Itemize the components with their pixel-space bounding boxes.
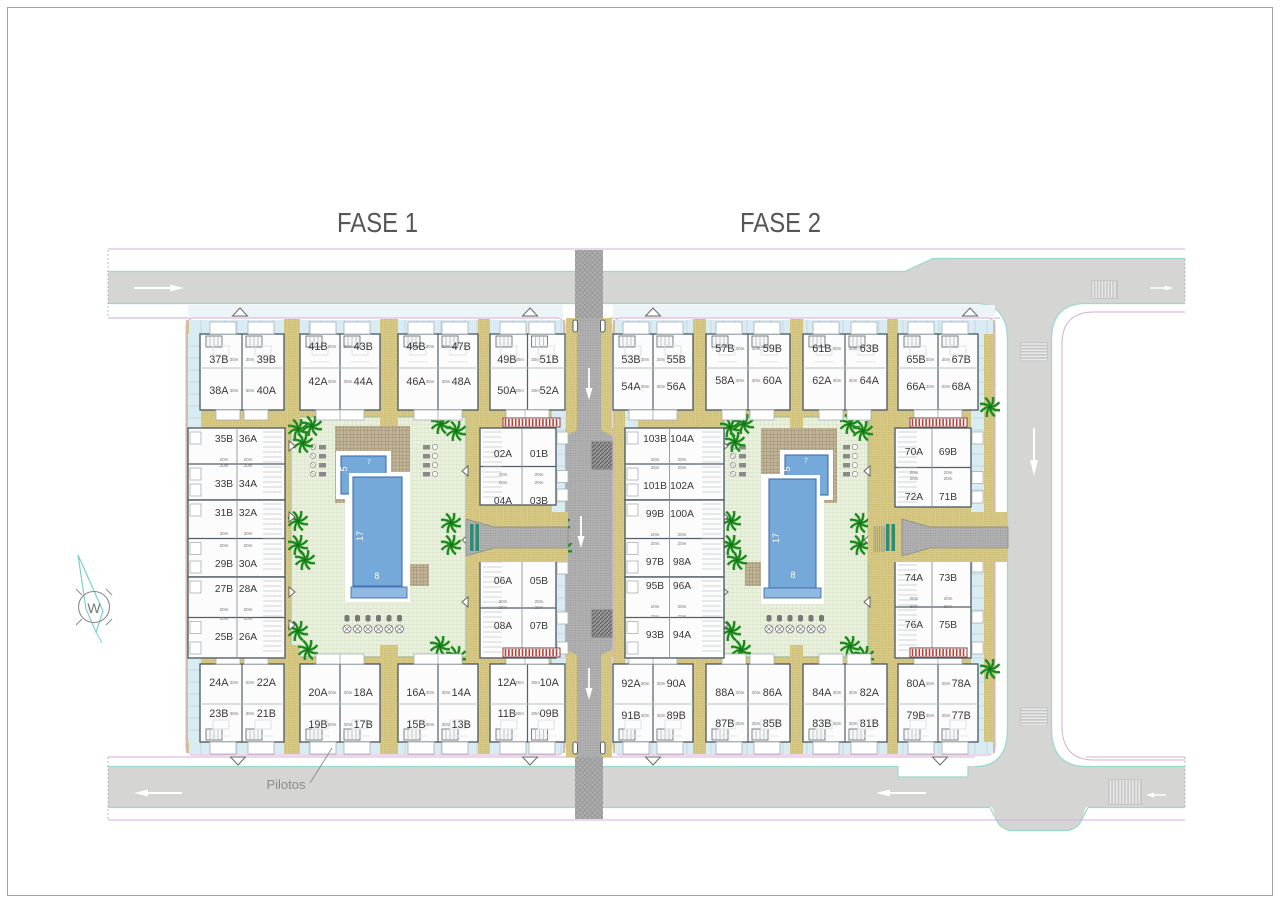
svg-text:30m: 30m [926,681,935,686]
svg-text:20m: 20m [499,599,508,604]
svg-text:30m: 30m [942,681,951,686]
svg-text:30m: 30m [942,384,951,389]
svg-text:30m: 30m [230,680,239,685]
svg-text:20m: 20m [220,616,229,621]
svg-text:30m: 30m [442,690,451,695]
svg-text:25B: 25B [215,632,233,643]
svg-text:30m: 30m [531,388,540,393]
svg-text:30m: 30m [641,357,650,362]
svg-text:11B: 11B [498,708,516,720]
svg-text:19B: 19B [308,719,327,731]
svg-text:FASE 1: FASE 1 [337,207,418,238]
svg-text:30m: 30m [328,379,337,384]
svg-text:20m: 20m [651,465,660,470]
svg-text:32A: 32A [239,508,257,519]
svg-text:22A: 22A [257,677,277,689]
svg-text:28A: 28A [239,584,257,595]
svg-text:30m: 30m [515,680,524,685]
svg-text:87B: 87B [715,718,734,730]
svg-text:64A: 64A [860,375,880,387]
svg-text:30m: 30m [641,384,650,389]
svg-text:20m: 20m [220,531,229,536]
svg-text:31B: 31B [215,508,233,519]
svg-text:30m: 30m [230,357,239,362]
svg-text:18A: 18A [354,687,374,699]
svg-text:30m: 30m [926,384,935,389]
svg-text:20m: 20m [910,470,919,475]
svg-text:20m: 20m [535,480,544,485]
svg-text:13B: 13B [452,719,471,731]
svg-text:30m: 30m [531,711,540,716]
svg-text:70A: 70A [905,447,923,458]
svg-text:44A: 44A [354,376,374,388]
svg-text:23B: 23B [209,708,228,720]
svg-text:30m: 30m [657,681,666,686]
svg-text:20m: 20m [535,599,544,604]
svg-text:102A: 102A [670,481,694,492]
svg-text:20m: 20m [244,616,253,621]
svg-text:83B: 83B [812,718,831,730]
svg-text:20m: 20m [651,541,660,546]
svg-text:30m: 30m [328,344,337,349]
svg-text:49B: 49B [497,354,516,366]
svg-text:37B: 37B [209,354,228,366]
svg-text:20m: 20m [244,463,253,468]
svg-text:30m: 30m [515,388,524,393]
svg-text:30m: 30m [426,722,435,727]
svg-text:62A: 62A [812,375,832,387]
svg-text:20m: 20m [651,614,660,619]
svg-text:20m: 20m [910,604,919,609]
svg-text:30m: 30m [641,681,650,686]
svg-text:30m: 30m [926,357,935,362]
svg-text:46A: 46A [406,376,426,388]
svg-text:20m: 20m [220,457,229,462]
svg-text:40A: 40A [257,385,277,397]
svg-text:20m: 20m [944,476,953,481]
svg-text:30m: 30m [736,378,745,383]
svg-text:57B: 57B [715,343,734,355]
svg-text:20m: 20m [678,465,687,470]
svg-text:39B: 39B [257,354,276,366]
svg-text:16A: 16A [406,687,426,699]
svg-text:47B: 47B [452,341,471,353]
svg-text:63B: 63B [860,343,879,355]
svg-text:30m: 30m [344,379,353,384]
svg-text:30m: 30m [442,722,451,727]
svg-text:30m: 30m [531,357,540,362]
svg-text:30m: 30m [246,711,255,716]
svg-text:17: 17 [771,533,781,543]
svg-text:33B: 33B [215,479,233,490]
svg-text:01B: 01B [530,449,548,460]
svg-text:73B: 73B [939,573,957,584]
svg-text:81B: 81B [860,718,879,730]
svg-text:20m: 20m [220,463,229,468]
svg-text:06A: 06A [494,576,512,587]
svg-text:09B: 09B [540,708,559,720]
svg-text:94A: 94A [673,630,691,641]
svg-text:30m: 30m [344,344,353,349]
svg-text:30m: 30m [426,690,435,695]
svg-text:29B: 29B [215,559,233,570]
svg-text:79B: 79B [906,710,925,722]
svg-text:53B: 53B [621,354,640,366]
svg-text:35B: 35B [215,434,233,445]
svg-text:100A: 100A [670,509,694,520]
svg-text:90A: 90A [667,678,687,690]
svg-text:55B: 55B [667,354,686,366]
svg-text:20m: 20m [678,457,687,462]
svg-text:7: 7 [804,458,808,465]
svg-text:20m: 20m [678,532,687,537]
svg-text:27B: 27B [215,584,233,595]
svg-text:30m: 30m [752,690,761,695]
svg-text:20m: 20m [499,480,508,485]
svg-text:20m: 20m [944,604,953,609]
svg-text:30m: 30m [344,690,353,695]
svg-text:97B: 97B [646,557,664,568]
svg-text:30m: 30m [657,713,666,718]
svg-text:30m: 30m [942,713,951,718]
svg-text:30m: 30m [942,357,951,362]
svg-text:30m: 30m [736,721,745,726]
svg-text:30A: 30A [239,559,257,570]
svg-text:30m: 30m [833,721,842,726]
svg-text:30m: 30m [515,711,524,716]
svg-text:30m: 30m [849,378,858,383]
svg-text:30m: 30m [849,721,858,726]
svg-text:30m: 30m [833,346,842,351]
svg-text:05B: 05B [530,576,548,587]
svg-text:71B: 71B [939,492,957,503]
svg-text:30m: 30m [926,713,935,718]
svg-text:30m: 30m [230,388,239,393]
svg-text:20m: 20m [499,472,508,477]
svg-text:14A: 14A [452,687,472,699]
svg-text:67B: 67B [952,354,971,366]
svg-text:5: 5 [782,466,792,471]
svg-text:41B: 41B [308,341,327,353]
svg-text:38A: 38A [209,385,229,397]
svg-text:91B: 91B [621,710,640,722]
svg-text:103B: 103B [643,434,667,445]
svg-text:20m: 20m [944,596,953,601]
svg-text:17B: 17B [354,719,373,731]
svg-text:30m: 30m [246,357,255,362]
svg-text:20m: 20m [678,614,687,619]
svg-text:30m: 30m [442,379,451,384]
svg-text:20m: 20m [651,457,660,462]
svg-text:30m: 30m [657,384,666,389]
svg-text:96A: 96A [673,581,691,592]
svg-text:45B: 45B [406,341,425,353]
svg-text:72A: 72A [905,492,923,503]
svg-text:30m: 30m [442,344,451,349]
svg-text:20m: 20m [910,476,919,481]
svg-text:43B: 43B [354,341,373,353]
svg-text:04A: 04A [494,496,512,507]
svg-text:24A: 24A [209,677,229,689]
svg-text:30m: 30m [752,721,761,726]
svg-text:98A: 98A [673,557,691,568]
svg-text:20m: 20m [944,470,953,475]
svg-text:30m: 30m [833,690,842,695]
svg-text:17: 17 [355,531,365,541]
svg-text:95B: 95B [646,581,664,592]
svg-text:8: 8 [790,570,795,580]
svg-text:W: W [87,600,101,616]
svg-text:26A: 26A [239,632,257,643]
svg-text:FASE 2: FASE 2 [740,207,821,238]
svg-text:82A: 82A [860,687,880,699]
svg-text:30m: 30m [246,388,255,393]
svg-text:58A: 58A [715,375,735,387]
svg-text:30m: 30m [328,722,337,727]
svg-text:30m: 30m [736,346,745,351]
svg-text:30m: 30m [641,713,650,718]
svg-text:30m: 30m [849,690,858,695]
svg-text:89B: 89B [667,710,686,722]
svg-text:69B: 69B [939,447,957,458]
svg-text:20m: 20m [535,605,544,610]
svg-text:30m: 30m [849,346,858,351]
svg-text:20m: 20m [220,607,229,612]
svg-text:30m: 30m [344,722,353,727]
svg-text:84A: 84A [812,687,832,699]
svg-text:68A: 68A [952,381,972,393]
svg-text:5: 5 [339,466,349,471]
svg-text:80A: 80A [906,678,926,690]
svg-text:48A: 48A [452,376,472,388]
svg-text:42A: 42A [308,376,328,388]
svg-text:20m: 20m [678,541,687,546]
svg-text:88A: 88A [715,687,735,699]
svg-text:7: 7 [367,459,371,466]
svg-text:07B: 07B [530,621,548,632]
svg-text:03B: 03B [530,496,548,507]
svg-text:86A: 86A [763,687,783,699]
svg-text:101B: 101B [643,481,667,492]
svg-text:60A: 60A [763,375,783,387]
svg-text:20m: 20m [244,607,253,612]
svg-text:30m: 30m [736,690,745,695]
svg-text:20m: 20m [244,457,253,462]
svg-text:104A: 104A [670,434,694,445]
svg-text:56A: 56A [667,381,687,393]
svg-text:66A: 66A [906,381,926,393]
svg-text:61B: 61B [812,343,831,355]
svg-text:20m: 20m [499,605,508,610]
svg-text:30m: 30m [752,378,761,383]
svg-text:20m: 20m [678,604,687,609]
svg-text:75B: 75B [939,620,957,631]
svg-text:20m: 20m [244,543,253,548]
svg-text:20m: 20m [651,532,660,537]
svg-text:8: 8 [374,571,379,581]
svg-text:30m: 30m [426,379,435,384]
svg-text:34A: 34A [239,479,257,490]
svg-text:15B: 15B [406,719,425,731]
svg-text:77B: 77B [952,710,971,722]
svg-text:99B: 99B [646,509,664,520]
svg-text:93B: 93B [646,630,664,641]
svg-text:65B: 65B [906,354,925,366]
svg-text:52A: 52A [540,385,560,397]
svg-text:59B: 59B [763,343,782,355]
svg-text:76A: 76A [905,620,923,631]
svg-text:30m: 30m [752,346,761,351]
svg-text:36A: 36A [239,434,257,445]
svg-text:20m: 20m [220,543,229,548]
svg-text:20m: 20m [910,596,919,601]
svg-text:30m: 30m [426,344,435,349]
svg-text:20m: 20m [244,531,253,536]
svg-text:30m: 30m [246,680,255,685]
svg-text:20m: 20m [535,472,544,477]
svg-text:Pilotos: Pilotos [266,777,306,792]
svg-text:30m: 30m [230,711,239,716]
svg-text:30m: 30m [657,357,666,362]
svg-text:30m: 30m [531,680,540,685]
svg-text:30m: 30m [515,357,524,362]
svg-text:20m: 20m [651,604,660,609]
svg-text:78A: 78A [952,678,972,690]
svg-text:08A: 08A [494,621,512,632]
svg-text:74A: 74A [905,573,923,584]
svg-text:51B: 51B [540,354,559,366]
svg-text:30m: 30m [328,690,337,695]
svg-text:02A: 02A [494,449,512,460]
svg-text:20A: 20A [308,687,328,699]
svg-text:21B: 21B [257,708,276,720]
svg-text:30m: 30m [833,378,842,383]
svg-text:92A: 92A [621,678,641,690]
svg-text:10A: 10A [540,677,560,689]
svg-text:85B: 85B [763,718,782,730]
svg-text:54A: 54A [621,381,641,393]
